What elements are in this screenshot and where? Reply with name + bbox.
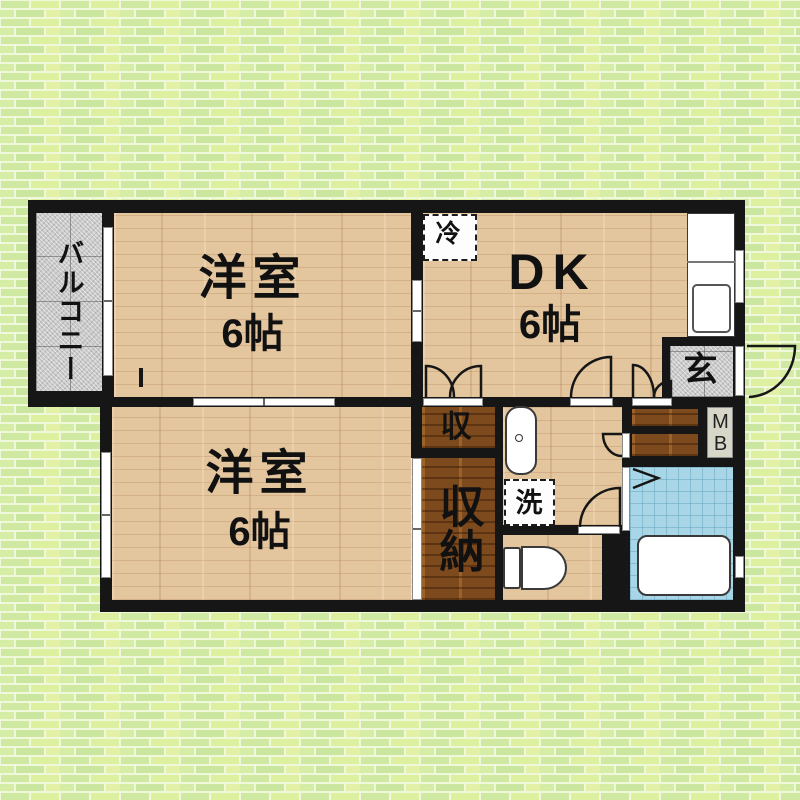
closet-label: 収納 bbox=[430, 462, 486, 594]
refrigerator-label: 冷 bbox=[432, 219, 464, 249]
storage-upper-label: 収 bbox=[435, 408, 477, 444]
wall bbox=[602, 535, 630, 600]
wall bbox=[100, 600, 745, 612]
balcony-bracket-mark bbox=[139, 368, 143, 387]
bedroom-partition-sliding-door bbox=[193, 398, 335, 406]
wall bbox=[700, 397, 707, 462]
wall bbox=[662, 337, 670, 397]
bathroom-window bbox=[735, 556, 744, 578]
hall-shelf-lower bbox=[630, 432, 700, 458]
bathtub bbox=[637, 535, 731, 596]
kitchen-sink bbox=[692, 284, 731, 333]
wall bbox=[495, 397, 503, 600]
hall-storage-door-opening bbox=[632, 398, 672, 406]
dk-name: DK bbox=[470, 246, 635, 298]
wall bbox=[28, 200, 36, 402]
bedroom-dk-sliding-door bbox=[412, 280, 422, 342]
bottom-bedroom-size: 6帖 bbox=[172, 508, 347, 556]
balcony-window bbox=[103, 227, 113, 376]
kitchen-counter-divider bbox=[687, 261, 735, 263]
balcony-label: バルコニー bbox=[40, 220, 96, 402]
washroom-door-opening bbox=[570, 398, 613, 406]
top-bedroom-name: 洋室 bbox=[150, 252, 355, 306]
vanity-drain bbox=[515, 434, 523, 442]
bottom-bedroom-name: 洋室 bbox=[157, 447, 362, 501]
wall bbox=[622, 397, 630, 433]
top-bedroom-size: 6帖 bbox=[165, 310, 340, 358]
kitchen-window bbox=[735, 250, 744, 303]
meter-box-label: MB bbox=[708, 409, 733, 457]
dk-size: 6帖 bbox=[465, 302, 635, 348]
closet-sliding-door bbox=[412, 458, 422, 600]
entrance-label: 玄 bbox=[678, 350, 723, 390]
bottom-bedroom-window bbox=[101, 452, 111, 578]
washroom-side-opening bbox=[622, 433, 630, 458]
bottom-bedroom-floor bbox=[112, 407, 411, 600]
wall bbox=[622, 458, 745, 467]
wall bbox=[28, 200, 745, 213]
storage-door-opening bbox=[423, 398, 483, 406]
washer-label: 洗 bbox=[513, 488, 545, 518]
toilet-bowl bbox=[521, 546, 567, 590]
entrance-door-opening bbox=[735, 346, 744, 396]
toilet-tank bbox=[503, 547, 521, 589]
floorplan-canvas: バルコニー 洋室 6帖 DK 6帖 洋室 6帖 玄 収 収納 冷 洗 MB bbox=[0, 0, 800, 800]
bathroom-door-opening bbox=[622, 467, 630, 531]
wall bbox=[420, 448, 495, 458]
toilet-door-opening bbox=[578, 526, 620, 534]
hall-shelf-upper bbox=[630, 407, 700, 428]
wall bbox=[662, 337, 737, 346]
